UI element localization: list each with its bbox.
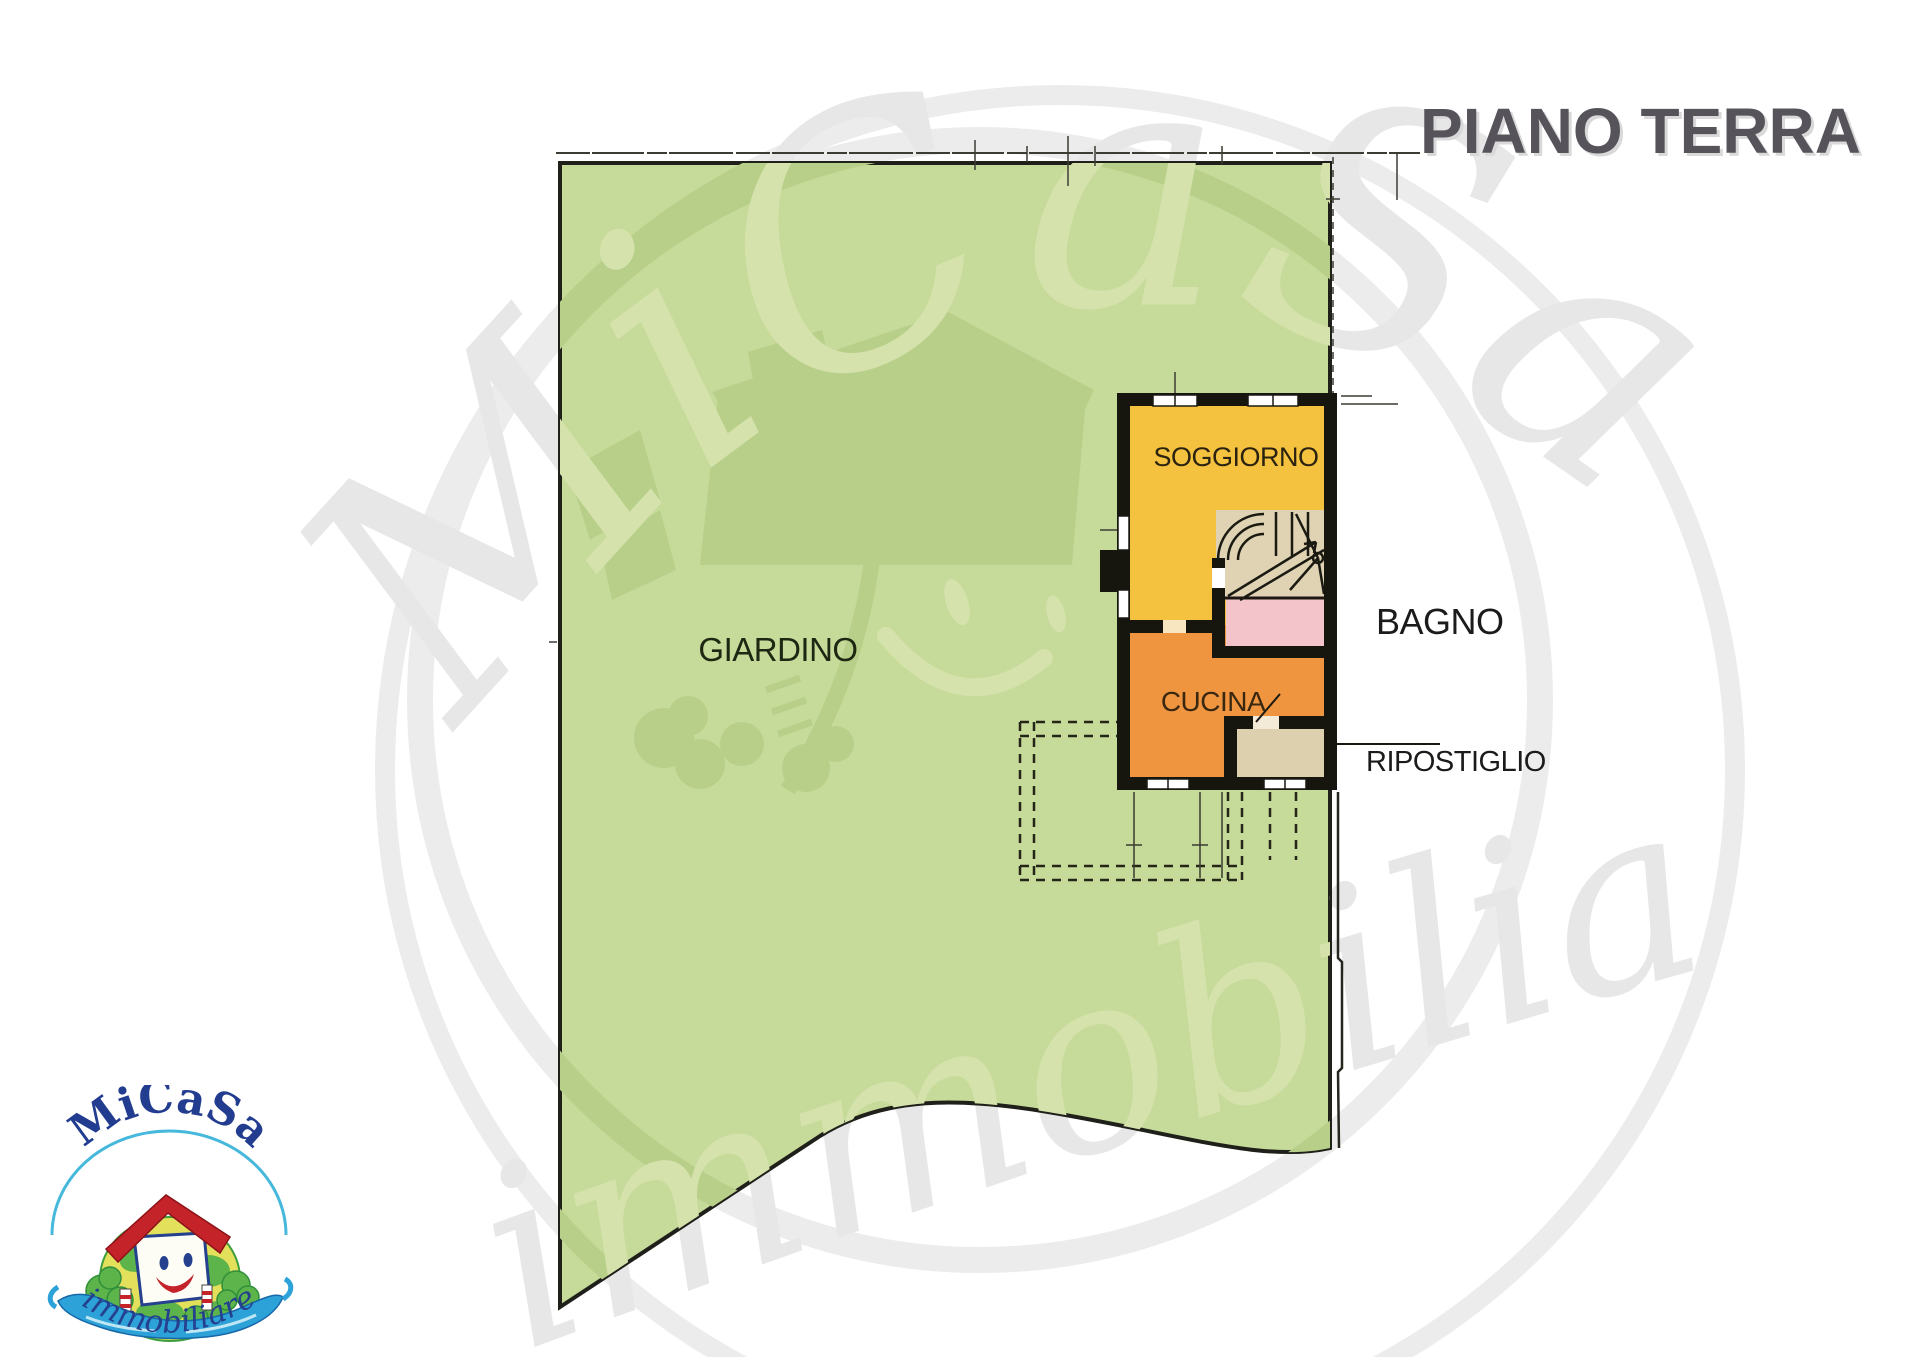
page-title: PIANO TERRA [1420, 94, 1840, 168]
window-left-2 [1118, 590, 1129, 618]
label-bagno: BAGNO [1376, 601, 1504, 643]
label-soggiorno: SOGGIORNO [1136, 442, 1336, 473]
floor-plan-page: MiCaSa immobiliare [0, 0, 1920, 1357]
logo-brand-text: MiCaSa [60, 1085, 280, 1157]
label-cucina: CUCINA [1113, 686, 1313, 718]
label-ripostiglio: RIPOSTIGLIO [1366, 746, 1546, 779]
ripostiglio-room [1231, 728, 1324, 778]
door-opening-cucina [1163, 620, 1186, 633]
agency-logo: MiCaSa immobiliare [46, 1085, 294, 1345]
bagno-room [1226, 596, 1324, 653]
window-left-1 [1118, 516, 1129, 550]
label-giardino: GIARDINO [678, 631, 878, 669]
chimney-pillar [1100, 550, 1130, 592]
